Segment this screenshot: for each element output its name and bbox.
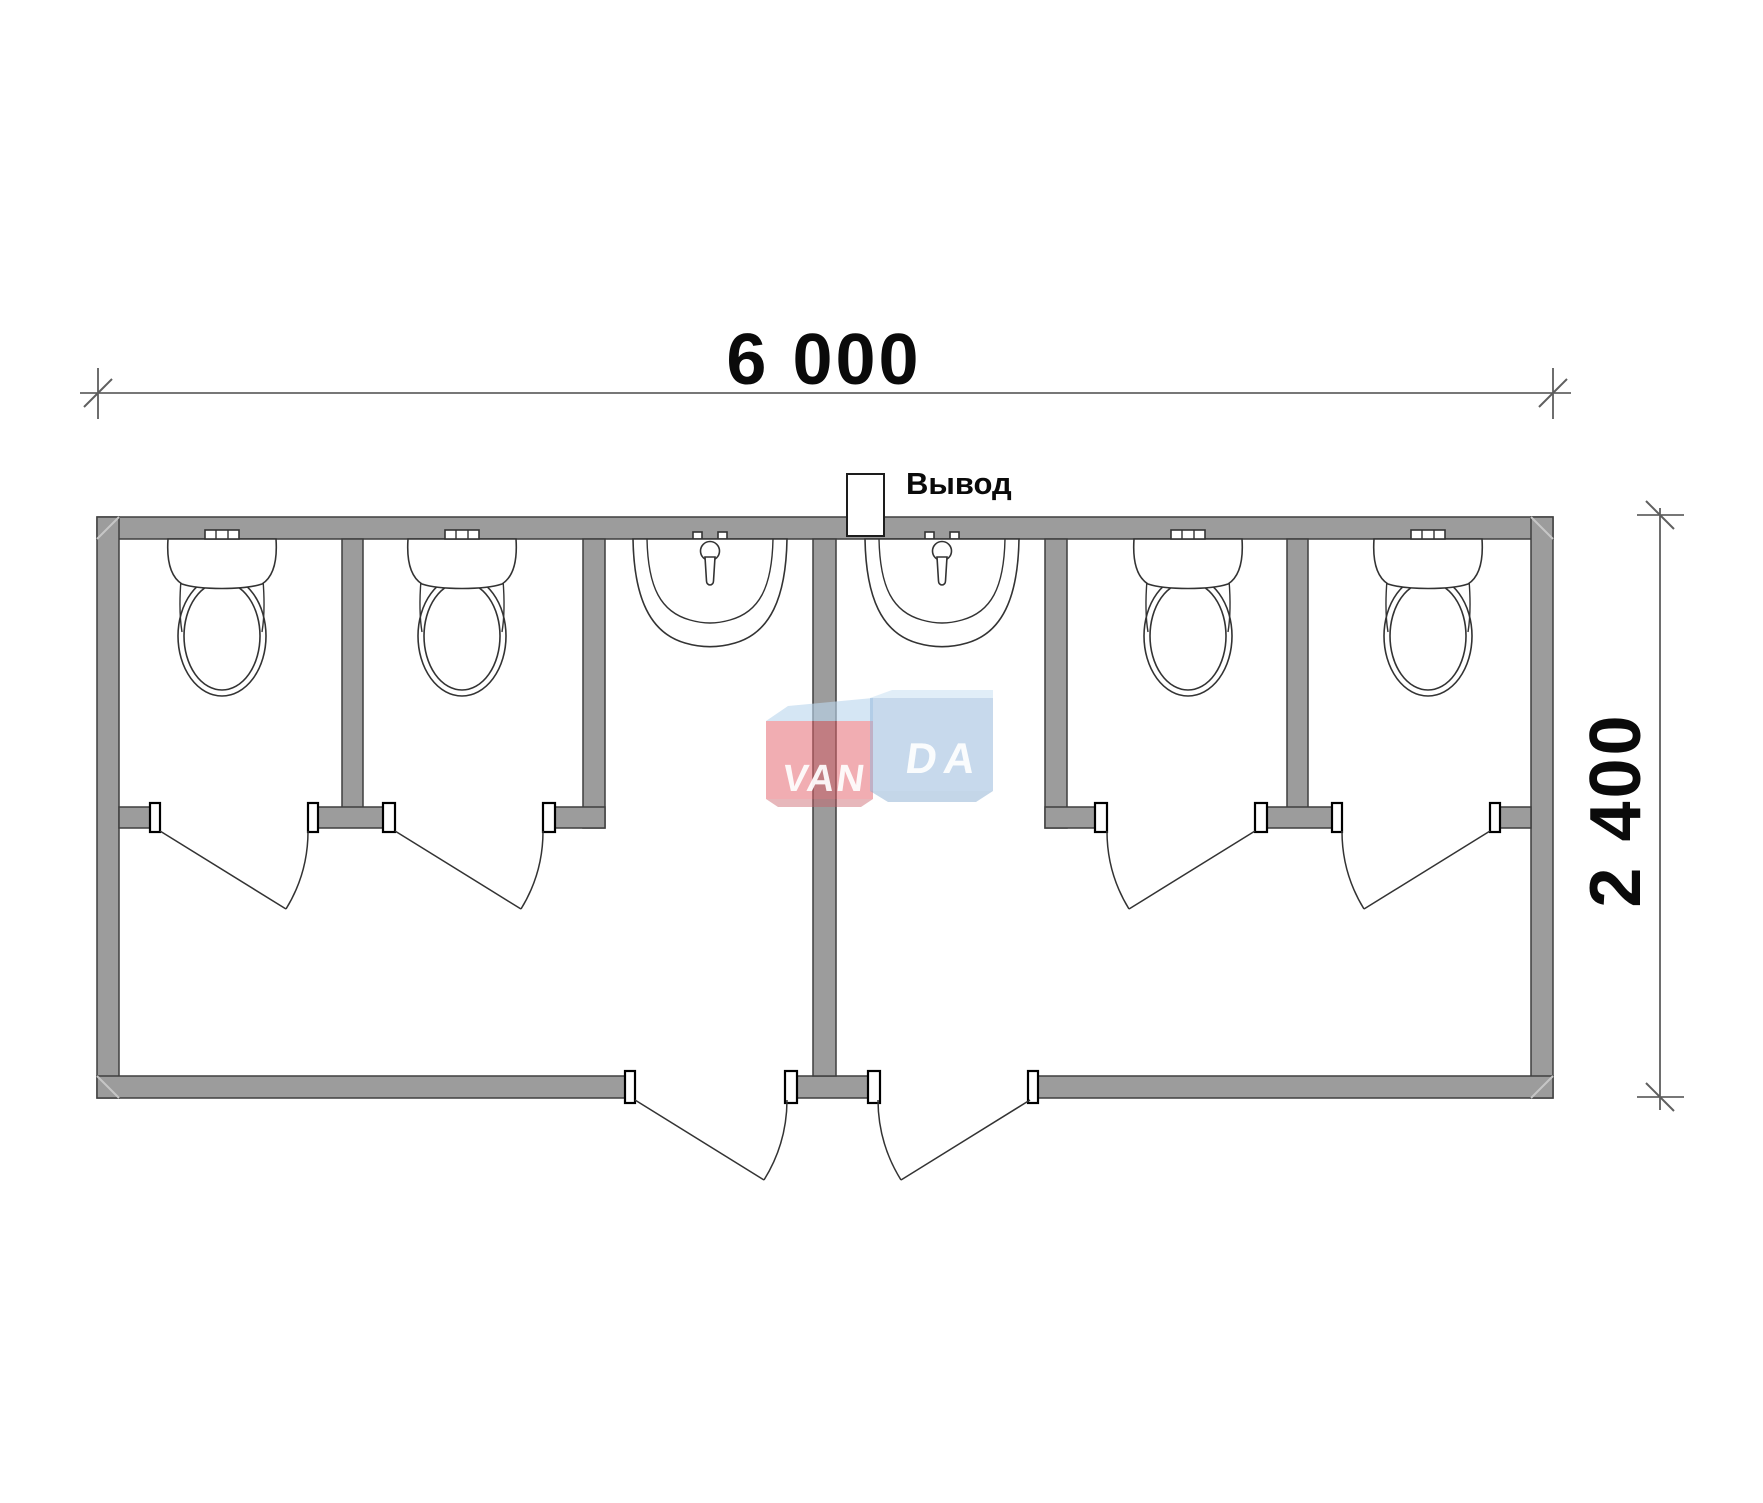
- entry-door-right: [878, 1100, 1030, 1180]
- outer-wall-top: [97, 517, 1553, 539]
- jamb: [1095, 803, 1107, 832]
- entry-door-left: [635, 1100, 787, 1180]
- logo-red-box-bottom-bevel: [766, 799, 873, 807]
- logo-text-van: VAN: [780, 757, 869, 800]
- stall-door-4: [1342, 831, 1490, 909]
- stall-front-wall-l2: [318, 807, 383, 828]
- vanda-logo-graphic: VAN DA: [754, 690, 1004, 812]
- stall-front-wall-r1: [1500, 807, 1531, 828]
- jamb: [1028, 1071, 1038, 1103]
- stall-door-2: [395, 831, 543, 909]
- outer-wall-bottom-center-tee: [797, 1076, 868, 1098]
- stall-partition-left: [342, 539, 363, 809]
- logo-red-box-top-bevel: [766, 698, 873, 721]
- toilet-2: [408, 530, 517, 696]
- jamb: [1332, 803, 1342, 832]
- jamb: [1255, 803, 1267, 832]
- stall-front-wall-l3: [555, 807, 605, 828]
- jamb: [868, 1071, 880, 1103]
- outer-wall-bottom-right: [1038, 1076, 1553, 1098]
- stall-front-wall-l1: [119, 807, 150, 828]
- logo-blue-box-top-bevel: [870, 690, 993, 698]
- jamb: [150, 803, 160, 832]
- stall-sidewall-right: [1045, 539, 1067, 828]
- stall-front-wall-r2: [1267, 807, 1332, 828]
- vanda-watermark: VAN DA: [754, 690, 1004, 812]
- toilet-1: [168, 530, 277, 696]
- jamb: [383, 803, 395, 832]
- jamb: [543, 803, 555, 832]
- outer-wall-bottom-left: [97, 1076, 625, 1098]
- stall-door-1: [160, 831, 308, 909]
- jamb: [1490, 803, 1500, 832]
- stall-door-3: [1107, 831, 1255, 909]
- outlet-label: Вывод: [906, 466, 1012, 502]
- jamb: [308, 803, 318, 832]
- jamb: [625, 1071, 635, 1103]
- toilet-4: [1374, 530, 1483, 696]
- sink-right: [865, 532, 1019, 647]
- jamb: [785, 1071, 797, 1103]
- dimension-width-label: 6 000: [726, 324, 921, 396]
- logo-blue-box-bottom-bevel: [870, 791, 993, 802]
- outer-wall-left: [97, 517, 119, 1098]
- toilet-3: [1134, 530, 1243, 696]
- floor-plan-page: { "dimensions": { "width_label": "6 000"…: [0, 0, 1763, 1503]
- outlet-stub: [847, 474, 884, 536]
- stall-front-wall-r3: [1045, 807, 1095, 828]
- stall-partition-right: [1287, 539, 1308, 809]
- dimension-height-label: 2 400: [1580, 712, 1652, 907]
- sink-left: [633, 532, 787, 647]
- outer-wall-right: [1531, 517, 1553, 1098]
- logo-text-da: DA: [903, 735, 986, 783]
- stall-sidewall-left: [583, 539, 605, 828]
